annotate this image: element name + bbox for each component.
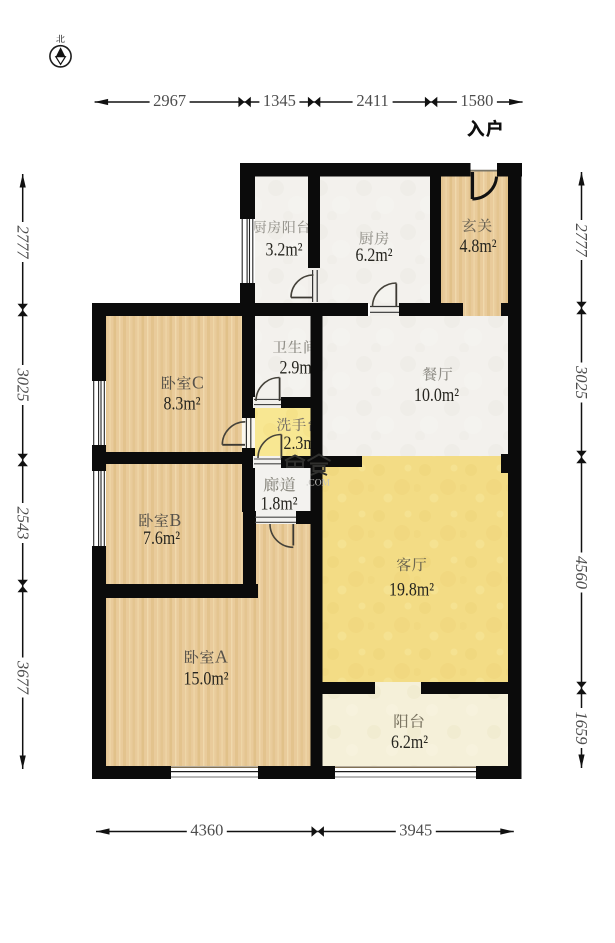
svg-text:4360: 4360 — [190, 821, 223, 840]
svg-text:7.6m²: 7.6m² — [143, 529, 180, 549]
svg-text:10.0m²: 10.0m² — [414, 386, 459, 406]
svg-text:B: B — [170, 510, 182, 530]
svg-text:C: C — [192, 373, 204, 393]
svg-text:3677: 3677 — [13, 660, 32, 695]
svg-text:WW: WW — [274, 479, 293, 490]
svg-text:2967: 2967 — [153, 91, 186, 110]
svg-text:3945: 3945 — [399, 821, 432, 840]
svg-text:6.2m²: 6.2m² — [356, 246, 393, 266]
svg-text:2777: 2777 — [572, 224, 591, 258]
svg-text:.COM: .COM — [306, 479, 331, 489]
svg-text:19.8m²: 19.8m² — [389, 580, 434, 600]
svg-text:3.2m²: 3.2m² — [266, 240, 303, 260]
svg-text:3025: 3025 — [572, 365, 591, 399]
svg-text:1580: 1580 — [460, 91, 493, 110]
svg-text:2411: 2411 — [356, 91, 388, 110]
svg-text:3025: 3025 — [13, 368, 32, 402]
svg-text:6.2m²: 6.2m² — [391, 733, 428, 753]
svg-text:1345: 1345 — [263, 91, 296, 110]
svg-text:2543: 2543 — [13, 507, 32, 540]
svg-text:1659: 1659 — [572, 712, 591, 745]
svg-text:4.8m²: 4.8m² — [460, 237, 497, 257]
svg-text:8.3m²: 8.3m² — [164, 394, 201, 414]
svg-text:4560: 4560 — [572, 556, 591, 590]
svg-text:15.0m²: 15.0m² — [184, 669, 229, 689]
svg-text:A: A — [215, 647, 228, 667]
svg-text:2777: 2777 — [13, 226, 32, 260]
